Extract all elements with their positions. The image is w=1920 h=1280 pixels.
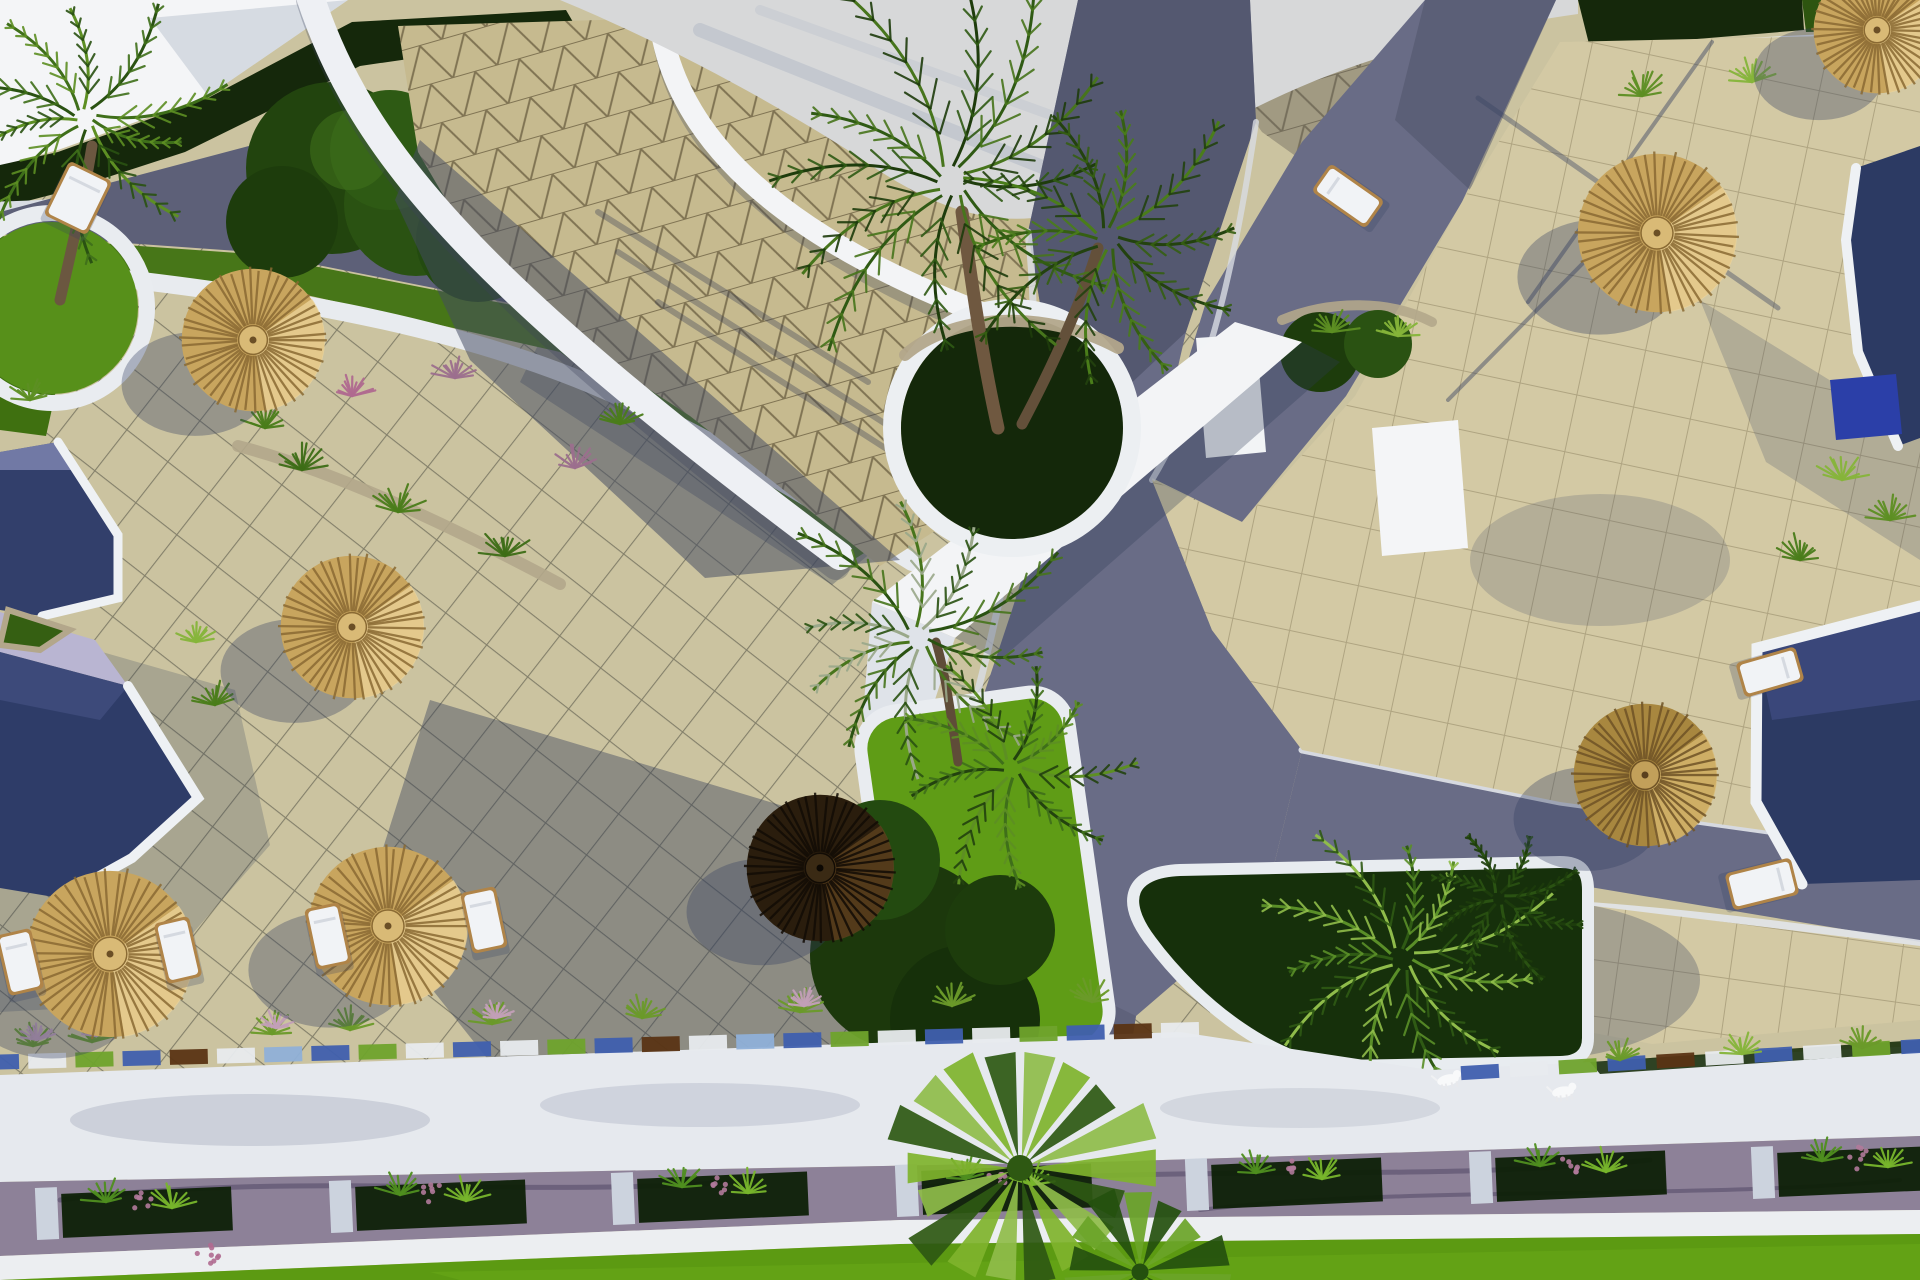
island-bush-4 (945, 875, 1055, 985)
aerial-resort-render (0, 0, 1920, 1280)
palm-planter-fill (901, 317, 1123, 539)
walkway-shadow-3 (1160, 1088, 1440, 1128)
bush-3 (226, 166, 338, 278)
spa-square (1830, 374, 1902, 440)
terrace-soft-shadow (1470, 494, 1730, 626)
walkway-shadow-2 (540, 1083, 860, 1127)
walkway-shadow-1 (70, 1094, 430, 1146)
aerial-resort-scene (0, 0, 1920, 1280)
white-block (1372, 420, 1468, 556)
